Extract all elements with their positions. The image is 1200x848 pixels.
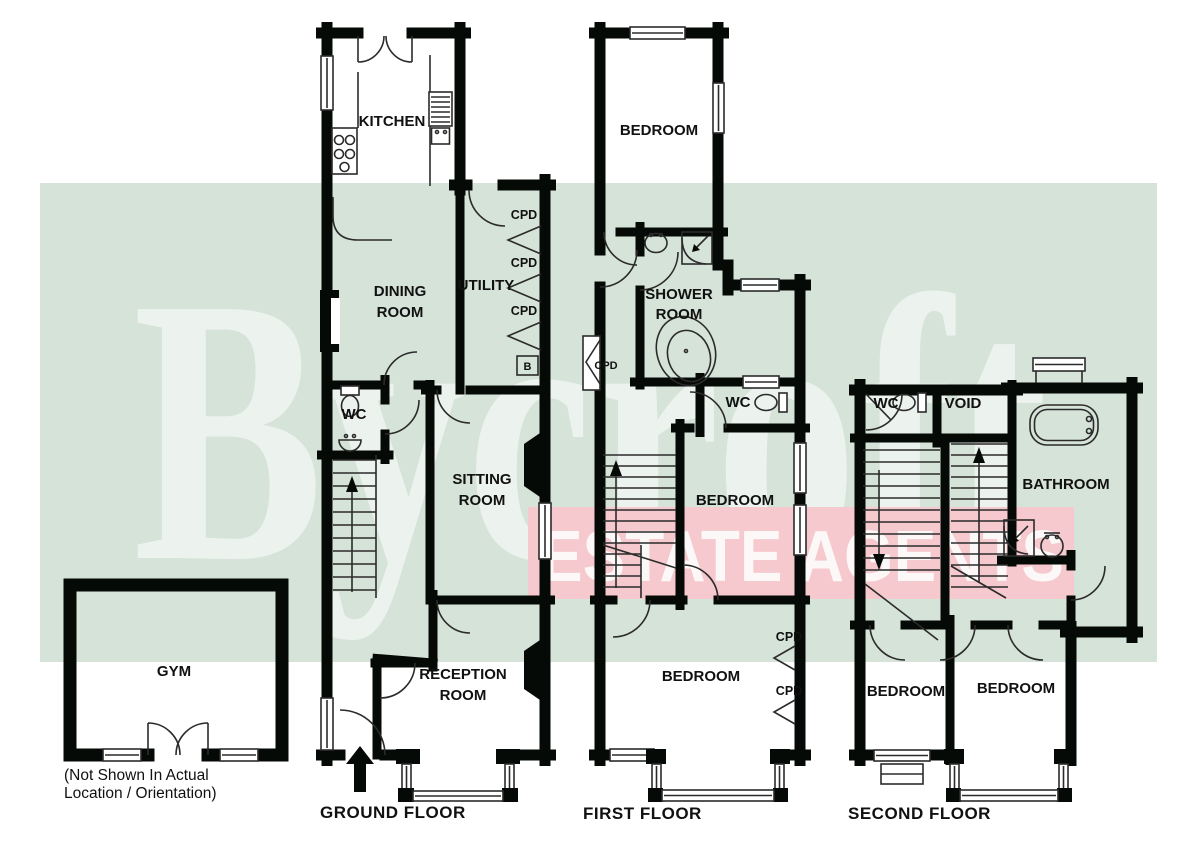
room-label-bathroom: BATHROOM (1022, 476, 1109, 493)
floorplan-page: Bycroft ESTATE AGENTS (0, 0, 1200, 848)
room-label-sitting-2: ROOM (459, 492, 506, 509)
room-label-bedroom-top: BEDROOM (620, 122, 698, 139)
floor-title-ground: GROUND FLOOR (320, 803, 466, 822)
floor-title-first: FIRST FLOOR (583, 804, 702, 823)
room-label-utility: UTILITY (458, 277, 515, 294)
window (741, 279, 779, 291)
room-label-shower-2: ROOM (656, 306, 703, 323)
window (743, 376, 779, 388)
room-label-dining-1: DINING (374, 283, 427, 300)
window (794, 505, 806, 555)
room-label-wc-sf: WC (874, 395, 899, 412)
window (713, 83, 724, 133)
bay-window (396, 749, 520, 802)
bay-window (646, 749, 790, 802)
hob-icon (332, 128, 357, 174)
room-label-void: VOID (945, 395, 982, 412)
room-label-bedroom-bottom: BEDROOM (662, 668, 740, 685)
cupboard-label-landing: CPD (594, 360, 617, 372)
window (794, 443, 806, 493)
window (539, 503, 551, 559)
chimney-breast-icon (524, 433, 540, 497)
window (630, 27, 685, 39)
sink-icon (429, 92, 452, 144)
floor-title-second: SECOND FLOOR (848, 804, 991, 823)
room-label-bedroom-middle: BEDROOM (696, 492, 774, 509)
cupboard-label-3: CPD (511, 304, 537, 318)
boiler-label: B (524, 361, 532, 373)
gym-doors (148, 723, 208, 755)
floorplan-svg: Bycroft ESTATE AGENTS (0, 0, 1200, 848)
room-label-shower-1: SHOWER (645, 286, 713, 303)
room-label-wc-gf: WC (342, 406, 367, 423)
window (874, 750, 930, 784)
gym-note-line1: (Not Shown In Actual (64, 767, 209, 784)
room-label-sitting-1: SITTING (452, 471, 511, 488)
room-label-wc-ff: WC (726, 394, 751, 411)
room-label-bedroom-right: BEDROOM (977, 680, 1055, 697)
window (103, 749, 141, 761)
entrance-arrow-icon (346, 746, 374, 792)
room-label-gym: GYM (157, 663, 191, 680)
cupboard-label-ff-1: CPD (776, 630, 802, 644)
room-label-dining-2: ROOM (377, 304, 424, 321)
window (321, 698, 333, 750)
room-label-bedroom-left: BEDROOM (867, 683, 945, 700)
window (220, 749, 258, 761)
gym-note-line2: Location / Orientation) (64, 785, 217, 802)
room-label-kitchen: KITCHEN (359, 113, 426, 130)
cupboard-label-1: CPD (511, 208, 537, 222)
window (321, 56, 333, 110)
room-label-reception-1: RECEPTION (419, 666, 507, 683)
cupboard-label-2: CPD (511, 256, 537, 270)
room-label-reception-2: ROOM (440, 687, 487, 704)
cupboard-label-ff-2: CPD (776, 684, 802, 698)
bay-window (944, 749, 1074, 802)
